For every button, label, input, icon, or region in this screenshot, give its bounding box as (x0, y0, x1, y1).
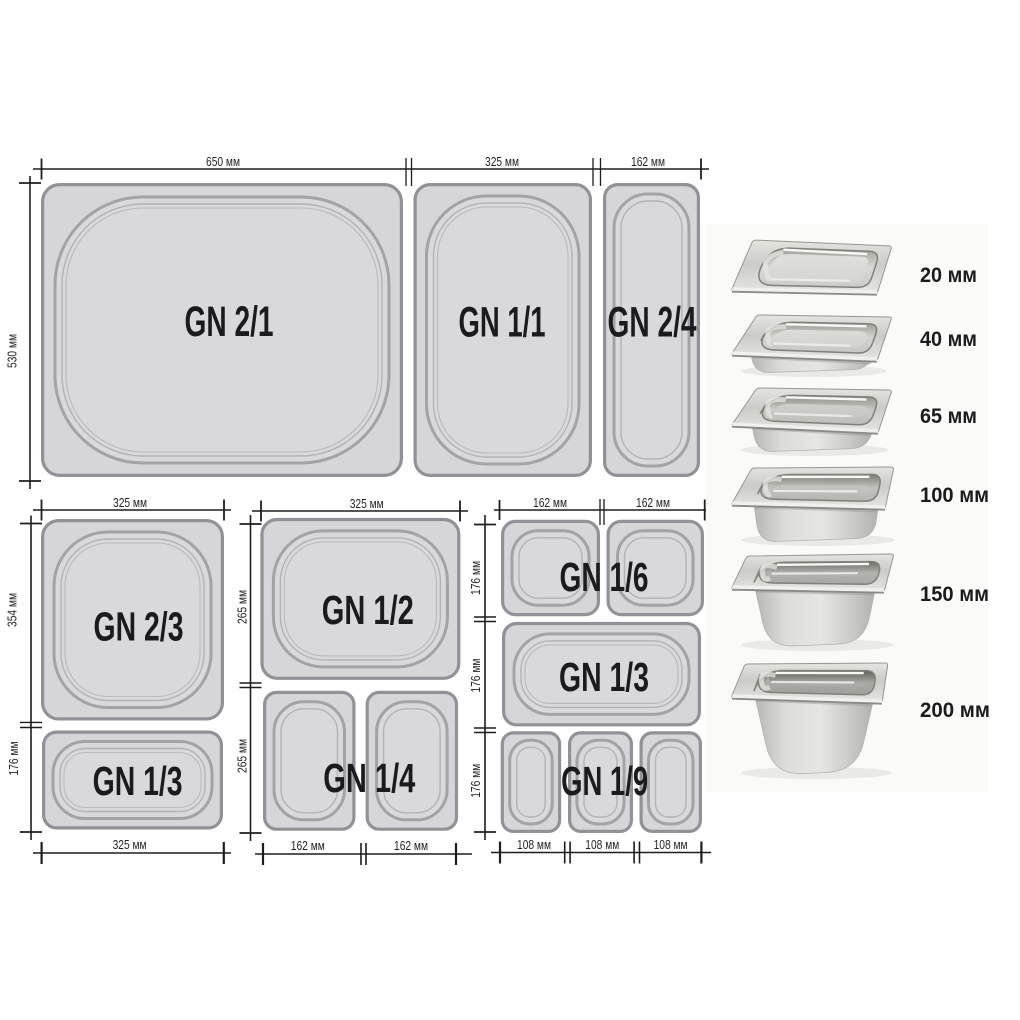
svg-text:40 мм: 40 мм (920, 328, 977, 351)
svg-text:GN 1/3: GN 1/3 (559, 654, 649, 700)
svg-text:176 мм: 176 мм (7, 742, 21, 776)
svg-text:GN 2/4: GN 2/4 (608, 298, 697, 346)
svg-text:GN 1/1: GN 1/1 (459, 298, 546, 346)
svg-text:325 мм: 325 мм (485, 155, 519, 169)
svg-text:265 мм: 265 мм (236, 739, 250, 773)
svg-text:150 мм: 150 мм (920, 583, 989, 606)
svg-text:20 мм: 20 мм (920, 264, 977, 287)
svg-text:GN 1/3: GN 1/3 (93, 758, 183, 804)
svg-text:108 мм: 108 мм (585, 838, 619, 852)
svg-text:GN 1/6: GN 1/6 (560, 554, 649, 600)
svg-text:265 мм: 265 мм (236, 590, 250, 624)
svg-text:GN 1/9: GN 1/9 (561, 758, 648, 804)
svg-text:176 мм: 176 мм (469, 764, 483, 798)
svg-text:65 мм: 65 мм (920, 405, 977, 428)
svg-text:162 мм: 162 мм (631, 155, 665, 169)
svg-text:162 мм: 162 мм (636, 496, 670, 510)
svg-text:176 мм: 176 мм (469, 659, 483, 693)
svg-text:162 мм: 162 мм (533, 496, 567, 510)
svg-text:200 мм: 200 мм (920, 699, 990, 722)
svg-text:108 мм: 108 мм (517, 838, 551, 852)
svg-text:162 мм: 162 мм (394, 839, 428, 853)
svg-text:GN 2/3: GN 2/3 (94, 603, 184, 649)
svg-text:354 мм: 354 мм (6, 593, 20, 627)
svg-text:100 мм: 100 мм (920, 484, 989, 507)
svg-text:GN 2/1: GN 2/1 (185, 298, 274, 346)
svg-text:176 мм: 176 мм (469, 561, 483, 595)
svg-text:GN 1/4: GN 1/4 (323, 755, 415, 801)
svg-text:GN 1/2: GN 1/2 (322, 587, 414, 633)
svg-text:325 мм: 325 мм (113, 838, 147, 852)
svg-text:325 мм: 325 мм (113, 496, 147, 510)
svg-text:530 мм: 530 мм (6, 334, 20, 368)
svg-text:162 мм: 162 мм (291, 839, 325, 853)
svg-text:650 мм: 650 мм (206, 155, 240, 169)
svg-text:108 мм: 108 мм (654, 838, 688, 852)
svg-text:325 мм: 325 мм (350, 497, 384, 511)
